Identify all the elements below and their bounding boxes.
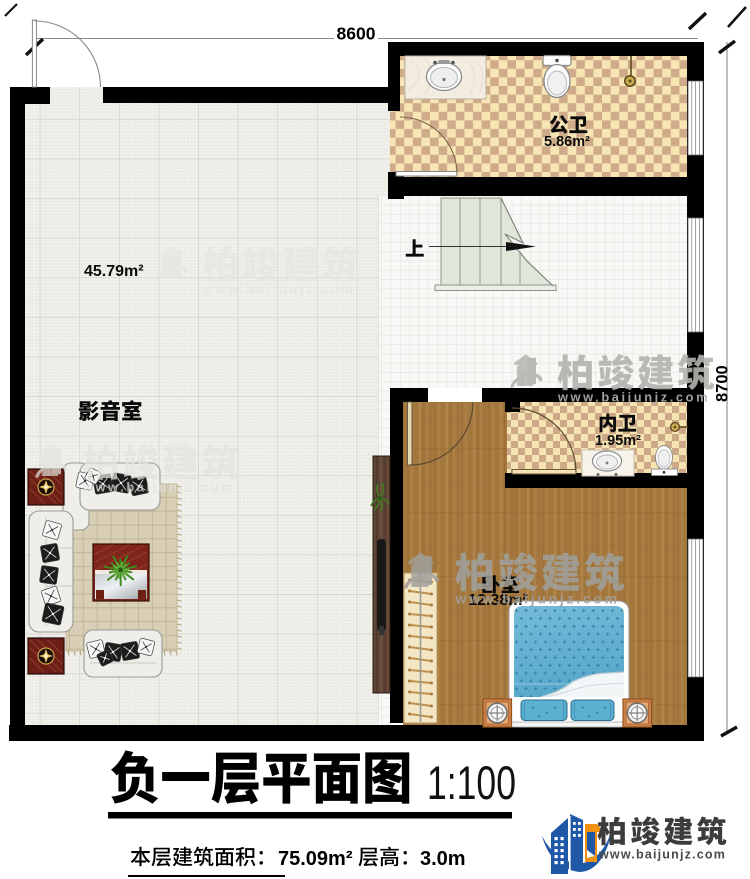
svg-text:www.baijunjz.com: www.baijunjz.com	[557, 390, 710, 405]
svg-text:8600: 8600	[337, 24, 376, 44]
svg-text:45.79m²: 45.79m²	[84, 263, 144, 280]
svg-text:1.95m²: 1.95m²	[595, 433, 641, 449]
svg-text:1:100: 1:100	[427, 756, 516, 809]
svg-text:5.86m²: 5.86m²	[544, 134, 590, 150]
svg-text:www.baijunjz.com: www.baijunjz.com	[598, 848, 726, 862]
svg-text:3.0m: 3.0m	[420, 848, 466, 870]
svg-text:8700: 8700	[714, 365, 732, 402]
svg-text:www.baijunjz.com: www.baijunjz.com	[202, 282, 355, 297]
svg-text:75.09m²: 75.09m²	[278, 848, 353, 870]
svg-text:www.baijunjz.com: www.baijunjz.com	[82, 480, 235, 495]
svg-text:www.baijunjz.com: www.baijunjz.com	[455, 591, 620, 607]
